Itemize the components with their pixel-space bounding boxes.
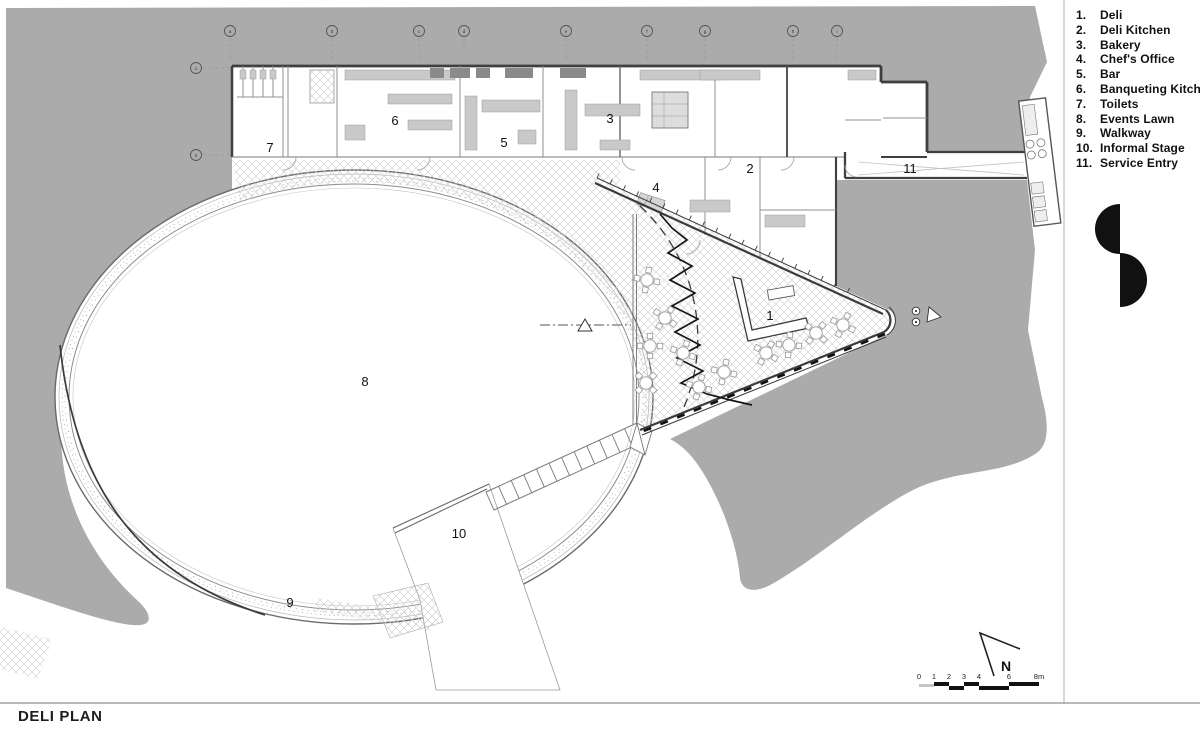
drawing-sheet: abcdefghi12 1234567891011 N 0123468m 1.D… (0, 0, 1200, 744)
legend-item: 1.Deli (1076, 8, 1196, 23)
room-label-8: 8 (361, 374, 368, 389)
room-label-9: 9 (286, 595, 293, 610)
legend-item-label: Events Lawn (1100, 112, 1196, 127)
legend-item: 4.Chef's Office (1076, 52, 1196, 67)
scale-tick: 2 (947, 672, 951, 681)
legend-item-number: 4. (1076, 52, 1100, 67)
room-label-6: 6 (391, 113, 398, 128)
legend-item-label: Walkway (1100, 126, 1196, 141)
legend-item: 9.Walkway (1076, 126, 1196, 141)
grid-bubble-label: i (836, 29, 837, 34)
legend-item-number: 7. (1076, 97, 1100, 112)
hatch-patch-corner (0, 627, 52, 679)
legend-item-number: 2. (1076, 23, 1100, 38)
grid-bubble-label: 2 (195, 153, 198, 158)
room-label-2: 2 (746, 161, 753, 176)
grid-bubble-label: d (463, 29, 466, 34)
legend-item-label: Bar (1100, 67, 1196, 82)
grid-bubble-label: 1 (195, 66, 198, 71)
room-label-11: 11 (903, 161, 917, 176)
range-hoods (430, 68, 586, 78)
scale-tick: 0 (917, 672, 921, 681)
room-label-4: 4 (652, 180, 659, 195)
legend-item-number: 1. (1076, 8, 1100, 23)
legend-item-number: 11. (1076, 156, 1100, 171)
room-label-5: 5 (500, 135, 507, 150)
scale-bar: 0123468m (917, 672, 1044, 690)
legend-item-number: 9. (1076, 126, 1100, 141)
scale-tick: 1 (932, 672, 936, 681)
legend-item: 8.Events Lawn (1076, 112, 1196, 127)
legend-item-number: 5. (1076, 67, 1100, 82)
grid-bubble-label: e (565, 29, 568, 34)
grid-bubble-label: b (331, 29, 334, 34)
legend-item-number: 10. (1076, 141, 1100, 156)
legend-item-label: Bakery (1100, 38, 1196, 53)
grid-bubble-label: h (792, 29, 795, 34)
legend: 1.Deli2.Deli Kitchen3.Bakery4.Chef's Off… (1076, 8, 1196, 171)
legend-item-label: Toilets (1100, 97, 1196, 112)
legend-item: 7.Toilets (1076, 97, 1196, 112)
floor-plan-canvas: abcdefghi12 1234567891011 N 0123468m (0, 0, 1200, 744)
room-label-10: 10 (452, 526, 466, 541)
scale-tick: 8m (1034, 672, 1044, 681)
legend-item-number: 6. (1076, 82, 1100, 97)
legend-item: 5.Bar (1076, 67, 1196, 82)
grid-bubble-label: a (229, 29, 232, 34)
legend-item-label: Deli Kitchen (1100, 23, 1196, 38)
scale-tick: 3 (962, 672, 966, 681)
room-label-1: 1 (766, 308, 773, 323)
legend-item-label: Service Entry (1100, 156, 1196, 171)
legend-item-label: Deli (1100, 8, 1196, 23)
legend-item-label: Banqueting Kitchen (1100, 82, 1200, 97)
legend-item-number: 3. (1076, 38, 1100, 53)
legend-item: 6.Banqueting Kitchen (1076, 82, 1196, 97)
studio-logo (1095, 204, 1147, 307)
drawing-title: DELI PLAN (18, 708, 103, 725)
room-label-7: 7 (266, 140, 273, 155)
grid-bubble-label: g (704, 29, 707, 34)
legend-item: 3.Bakery (1076, 38, 1196, 53)
north-arrow: N (980, 633, 1020, 676)
legend-item: 11.Service Entry (1076, 156, 1196, 171)
legend-item-label: Chef's Office (1100, 52, 1196, 67)
legend-item: 10.Informal Stage (1076, 141, 1196, 156)
scale-tick: 6 (1007, 672, 1011, 681)
scale-tick: 4 (977, 672, 981, 681)
legend-item-number: 8. (1076, 112, 1100, 127)
legend-item: 2.Deli Kitchen (1076, 23, 1196, 38)
room-label-3: 3 (606, 111, 613, 126)
legend-item-label: Informal Stage (1100, 141, 1196, 156)
